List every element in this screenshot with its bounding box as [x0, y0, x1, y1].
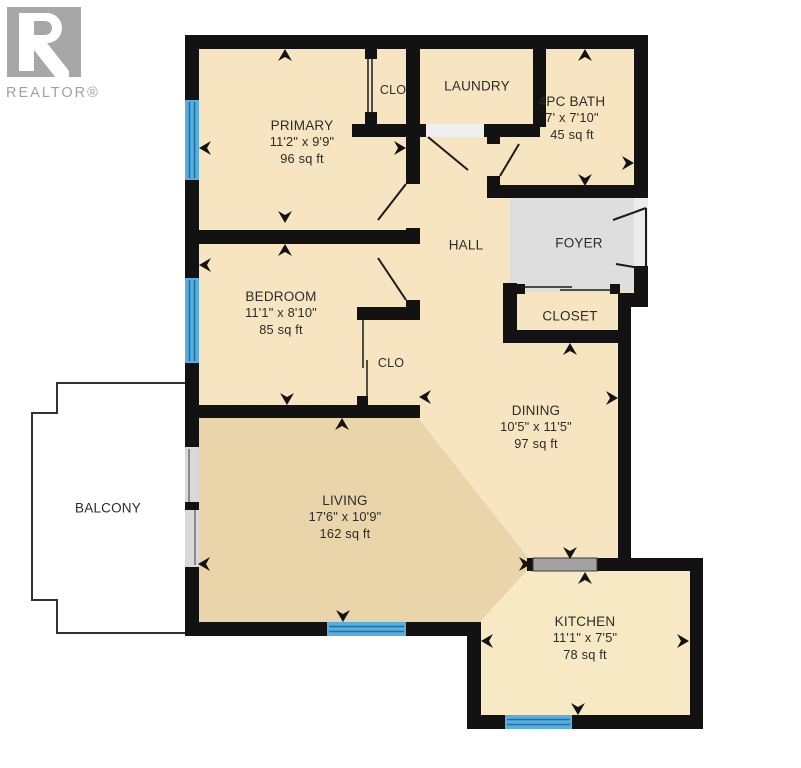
room-name: CLO: [378, 355, 404, 371]
room-name: HALL: [449, 236, 484, 253]
realtor-logo: REALTOR®: [6, 6, 98, 101]
room-name: 4PC BATH: [539, 93, 606, 110]
balcony-sliding-door: [185, 447, 199, 567]
room-name: LAUNDRY: [444, 77, 510, 94]
room-name: CLO: [380, 82, 406, 98]
room-name: PRIMARY: [270, 117, 335, 134]
room-name: BALCONY: [75, 499, 141, 516]
floorplan-canvas: PRIMARY 11'2" x 9'9" 96 sq ft CLO LAUNDR…: [0, 0, 801, 768]
realtor-logo-text: REALTOR®: [6, 85, 98, 101]
room-area: 45 sq ft: [539, 127, 606, 143]
laundry-door-gap: [426, 124, 484, 137]
room-label-balcony: BALCONY: [75, 499, 141, 516]
room-area: 162 sq ft: [309, 526, 382, 542]
room-label-living: LIVING 17'6" x 10'9" 162 sq ft: [309, 492, 382, 542]
room-name: DINING: [500, 402, 572, 419]
room-name: FOYER: [555, 234, 603, 251]
room-label-bedroom-closet: CLO: [378, 355, 404, 371]
room-name: CLOSET: [542, 307, 597, 324]
room-name: BEDROOM: [245, 288, 317, 305]
room-name: LIVING: [309, 492, 382, 509]
kitchen-counter: [533, 558, 597, 571]
room-dimensions: 11'1" x 7'5": [553, 630, 618, 646]
room-label-dining: DINING 10'5" x 11'5" 97 sq ft: [500, 402, 572, 452]
floorplan-drawing: [0, 0, 801, 768]
room-label-foyer: FOYER: [555, 234, 603, 251]
room-dimensions: 10'5" x 11'5": [500, 419, 572, 435]
room-area: 85 sq ft: [245, 322, 317, 338]
room-dimensions: 17'6" x 10'9": [309, 509, 382, 525]
room-area: 78 sq ft: [553, 647, 618, 663]
room-dimensions: 11'1" x 8'10": [245, 305, 317, 321]
living-window: [327, 622, 406, 636]
room-label-kitchen: KITCHEN 11'1" x 7'5" 78 sq ft: [553, 613, 618, 663]
room-label-bedroom: BEDROOM 11'1" x 8'10" 85 sq ft: [245, 288, 317, 338]
room-label-laundry: LAUNDRY: [444, 77, 510, 94]
room-label-primary-closet: CLO: [380, 82, 406, 98]
room-name: KITCHEN: [553, 613, 618, 630]
primary-window: [185, 100, 199, 180]
bedroom-window: [185, 278, 199, 363]
room-dimensions: 7' x 7'10": [539, 110, 606, 126]
room-dimensions: 11'2" x 9'9": [270, 134, 335, 150]
room-label-closet: CLOSET: [542, 307, 597, 324]
room-area: 97 sq ft: [500, 436, 572, 452]
room-label-bath: 4PC BATH 7' x 7'10" 45 sq ft: [539, 93, 606, 143]
room-label-hall: HALL: [449, 236, 484, 253]
room-label-primary: PRIMARY 11'2" x 9'9" 96 sq ft: [270, 117, 335, 167]
realtor-r-icon: [6, 6, 82, 78]
kitchen-window: [505, 715, 572, 729]
room-area: 96 sq ft: [270, 151, 335, 167]
